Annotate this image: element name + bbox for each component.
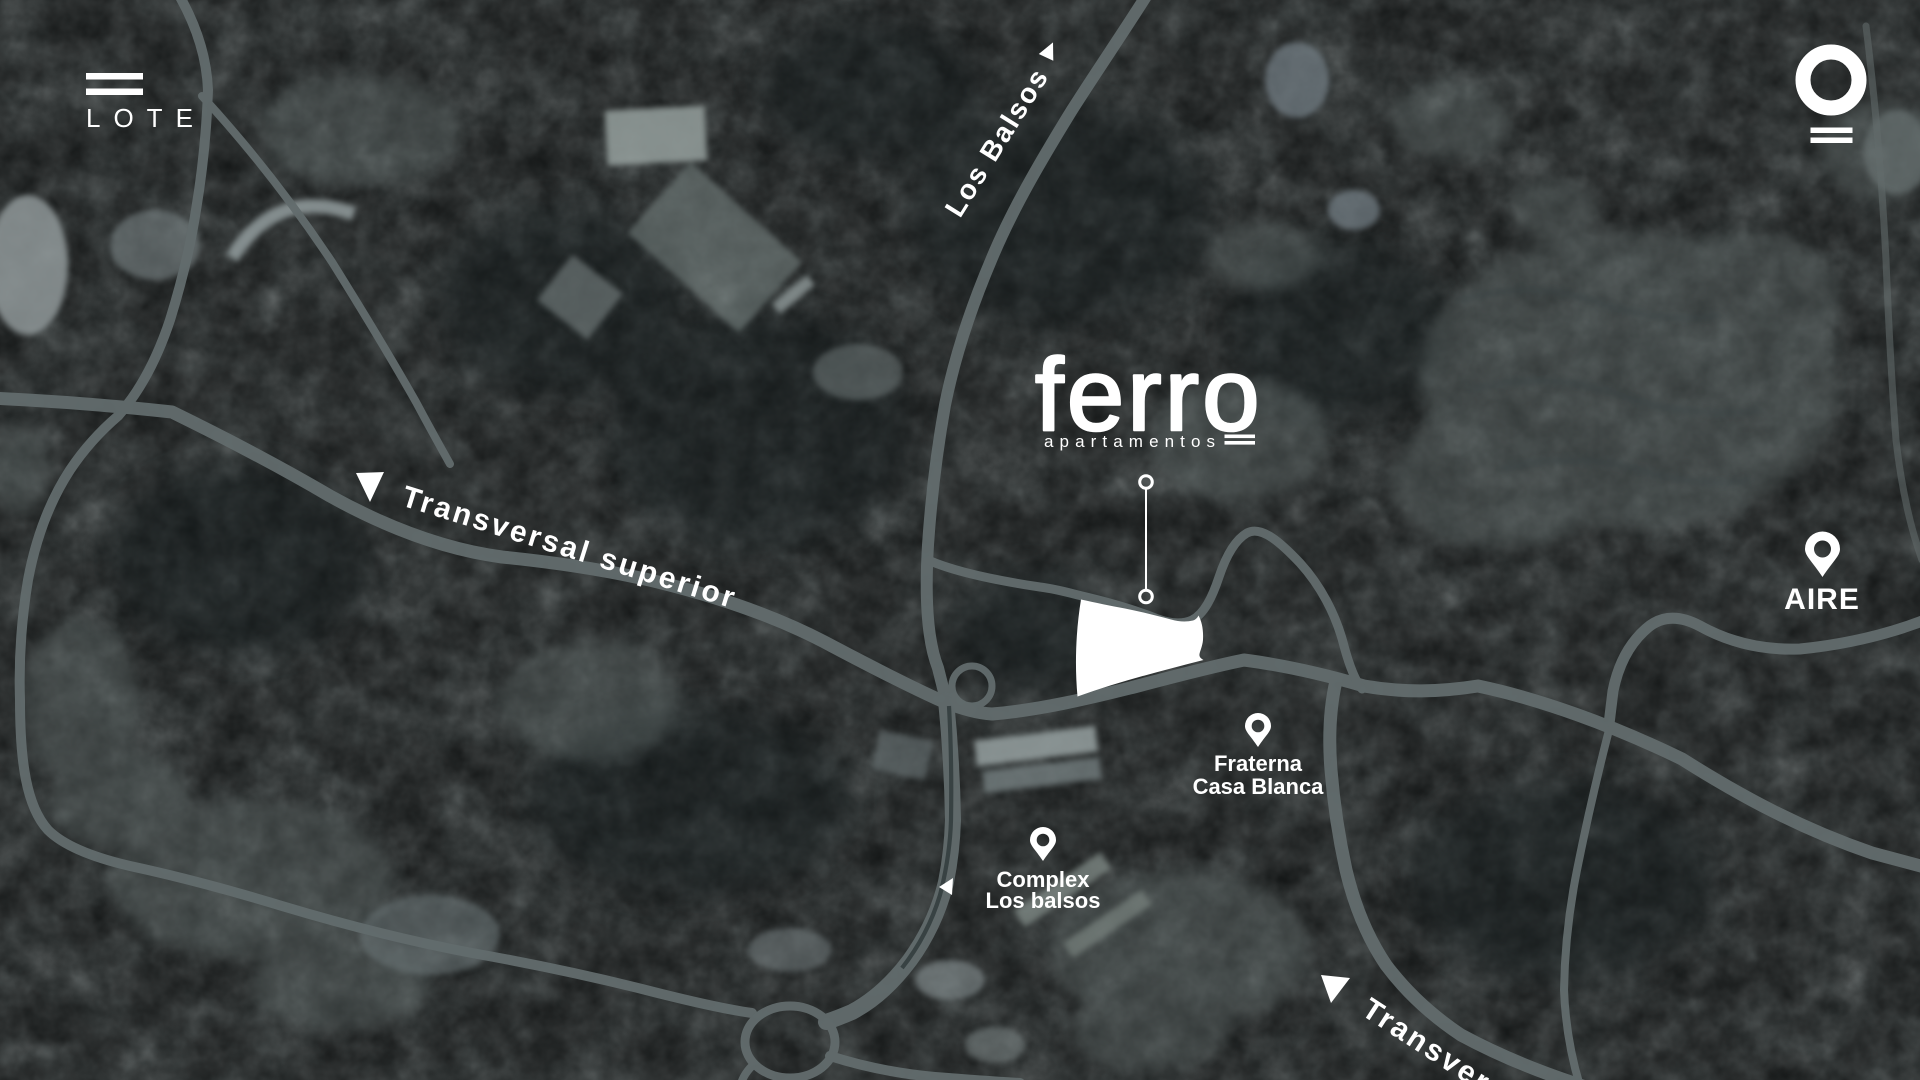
svg-text:Los balsos: Los balsos: [986, 888, 1101, 913]
svg-text:AIRE: AIRE: [1784, 583, 1860, 616]
svg-text:LOTE: LOTE: [86, 103, 206, 133]
svg-text:Casa Blanca: Casa Blanca: [1193, 774, 1325, 799]
svg-text:apartamentos: apartamentos: [1044, 432, 1221, 451]
svg-text:Fraterna: Fraterna: [1214, 751, 1303, 776]
